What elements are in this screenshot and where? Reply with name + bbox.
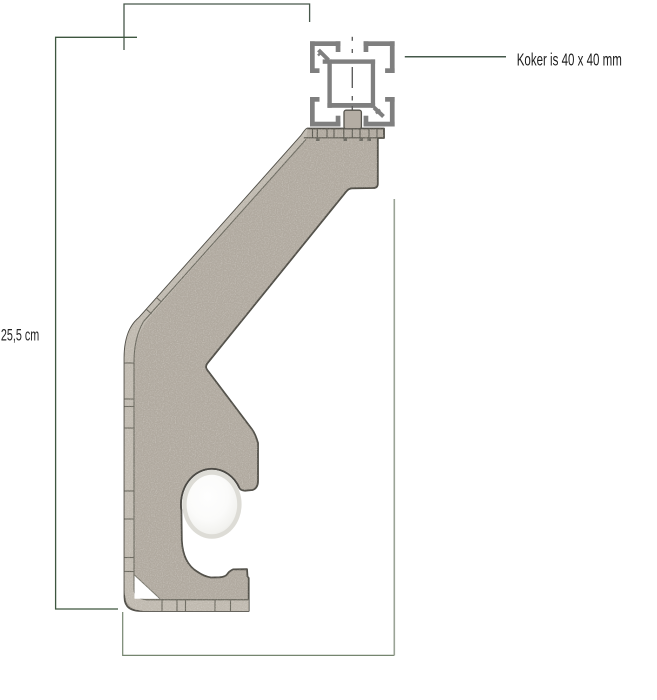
svg-text:Koker is 40 x 40 mm: Koker is 40 x 40 mm — [517, 51, 622, 70]
svg-text:25,5 cm: 25,5 cm — [1, 326, 39, 345]
